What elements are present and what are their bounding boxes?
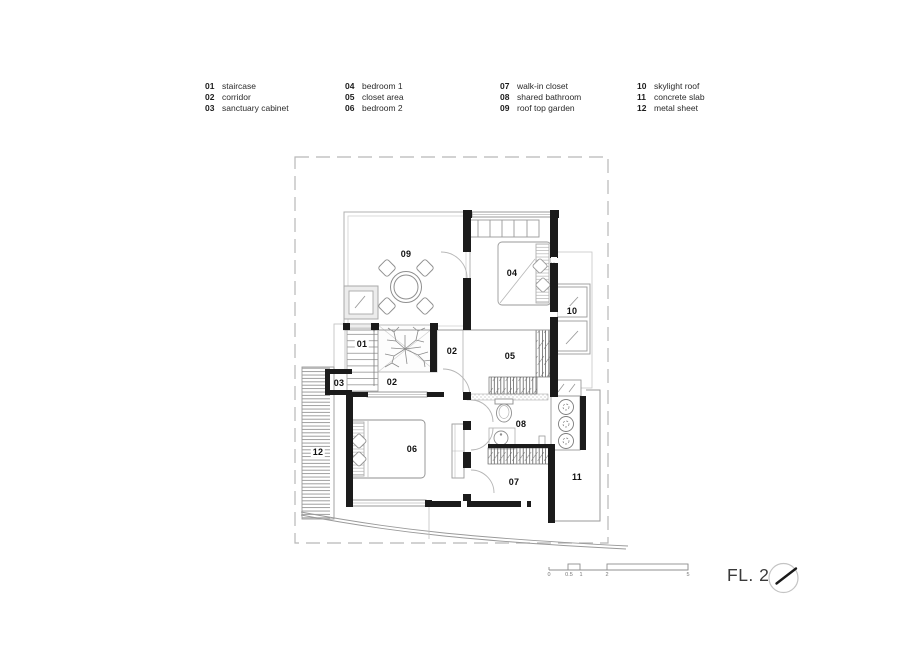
floorplan-drawing (0, 0, 920, 651)
scale-tick-1: 1 (579, 572, 582, 578)
room-label-01: 01 (355, 339, 369, 349)
room-label-08: 08 (516, 419, 526, 429)
walkin-closet-wardrobe (488, 448, 552, 464)
tree-courtyard (378, 325, 437, 372)
room-label-12: 12 (311, 447, 325, 457)
garden-skylight (344, 286, 378, 319)
garden-table-set (378, 259, 434, 315)
scale-tick-05: 0.5 (565, 572, 573, 578)
room-label-10: 10 (565, 306, 579, 316)
room-label-03: 03 (334, 378, 344, 388)
bathroom-fixtures (467, 394, 548, 449)
floor-plan-sheet: 01staircase 02corridor 03sanctuary cabin… (0, 0, 920, 651)
room-label-07: 07 (509, 477, 519, 487)
closet-area-wardrobes (463, 330, 550, 394)
room-label-02-lower: 02 (387, 377, 397, 387)
room-label-04: 04 (507, 268, 517, 278)
room-label-11: 11 (572, 472, 582, 482)
room-label-09: 09 (401, 249, 411, 259)
scale-tick-0: 0 (547, 572, 550, 578)
skylight-roof (554, 252, 592, 388)
north-compass-icon (766, 560, 802, 596)
bedroom1-furniture (466, 220, 551, 305)
scale-tick-5: 5 (686, 572, 689, 578)
floor-title: FL. 2 (727, 565, 769, 586)
room-label-05: 05 (505, 351, 515, 361)
room-label-02-upper: 02 (447, 346, 457, 356)
scale-tick-2: 2 (605, 572, 608, 578)
room-label-06: 06 (407, 444, 417, 454)
